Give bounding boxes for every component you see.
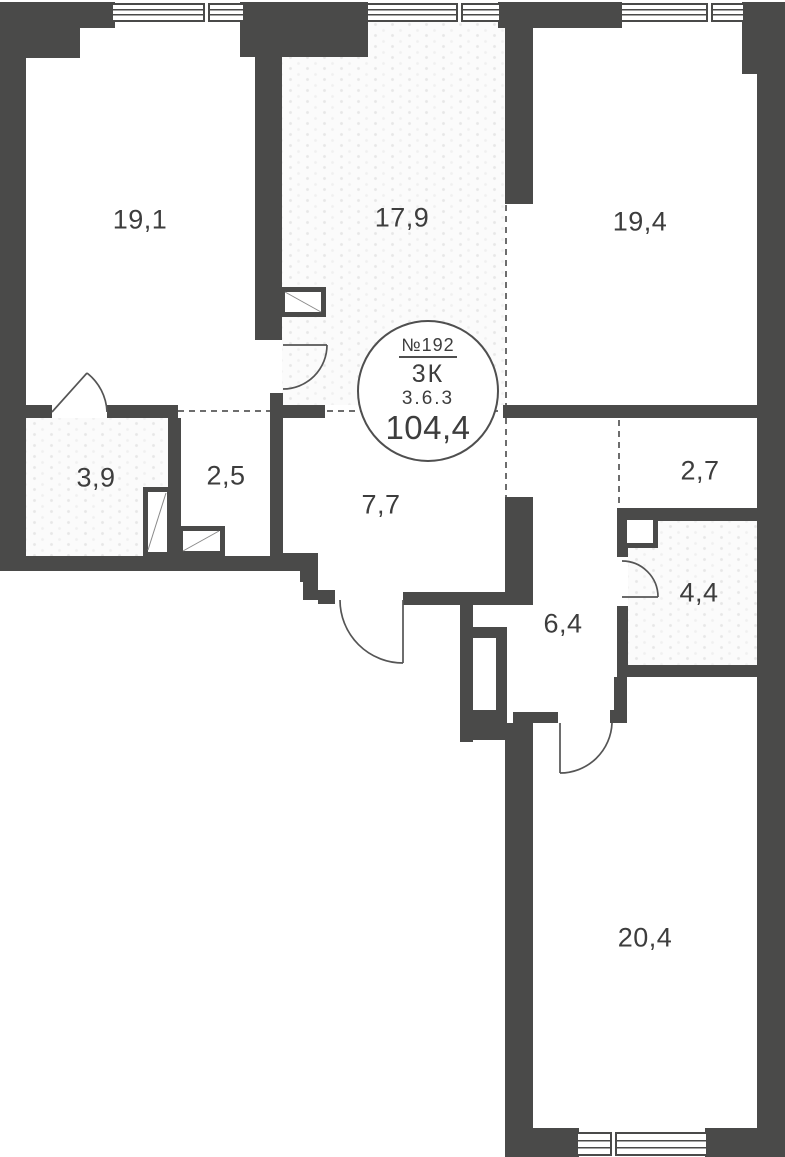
- unit-info-badge: №192 3К 3.6.3 104,4: [357, 320, 499, 462]
- room-area-label: 2,7: [680, 456, 719, 487]
- room-area-label: 20,4: [618, 923, 673, 954]
- room-area-label: 19,1: [113, 205, 168, 236]
- door-swings: [0, 0, 785, 1157]
- unit-type: 3К: [412, 360, 444, 388]
- room-area-label: 7,7: [361, 490, 400, 521]
- shaft-hatch-line: [183, 531, 219, 551]
- floor-plan: 19,1 17,9 19,4 3,9 2,5 7,7 2,7 4,4 6,4 2…: [0, 0, 785, 1157]
- room-area-label: 2,5: [206, 461, 245, 492]
- room-area-label: 4,4: [679, 578, 718, 609]
- door-arc: [560, 723, 612, 773]
- unit-number: №192: [399, 335, 456, 358]
- room-area-label: 3,9: [76, 463, 115, 494]
- door-arc: [622, 561, 658, 597]
- room-area-label: 17,9: [375, 203, 430, 234]
- unit-total-area: 104,4: [385, 410, 470, 447]
- door-arc: [52, 373, 107, 412]
- door-arc: [283, 345, 327, 389]
- unit-code: 3.6.3: [402, 388, 454, 409]
- door-arc: [340, 600, 403, 663]
- room-area-label: 19,4: [613, 207, 668, 238]
- room-area-label: 6,4: [543, 609, 582, 640]
- shaft-hatch-line: [285, 292, 321, 312]
- shaft-hatch-line: [148, 493, 166, 550]
